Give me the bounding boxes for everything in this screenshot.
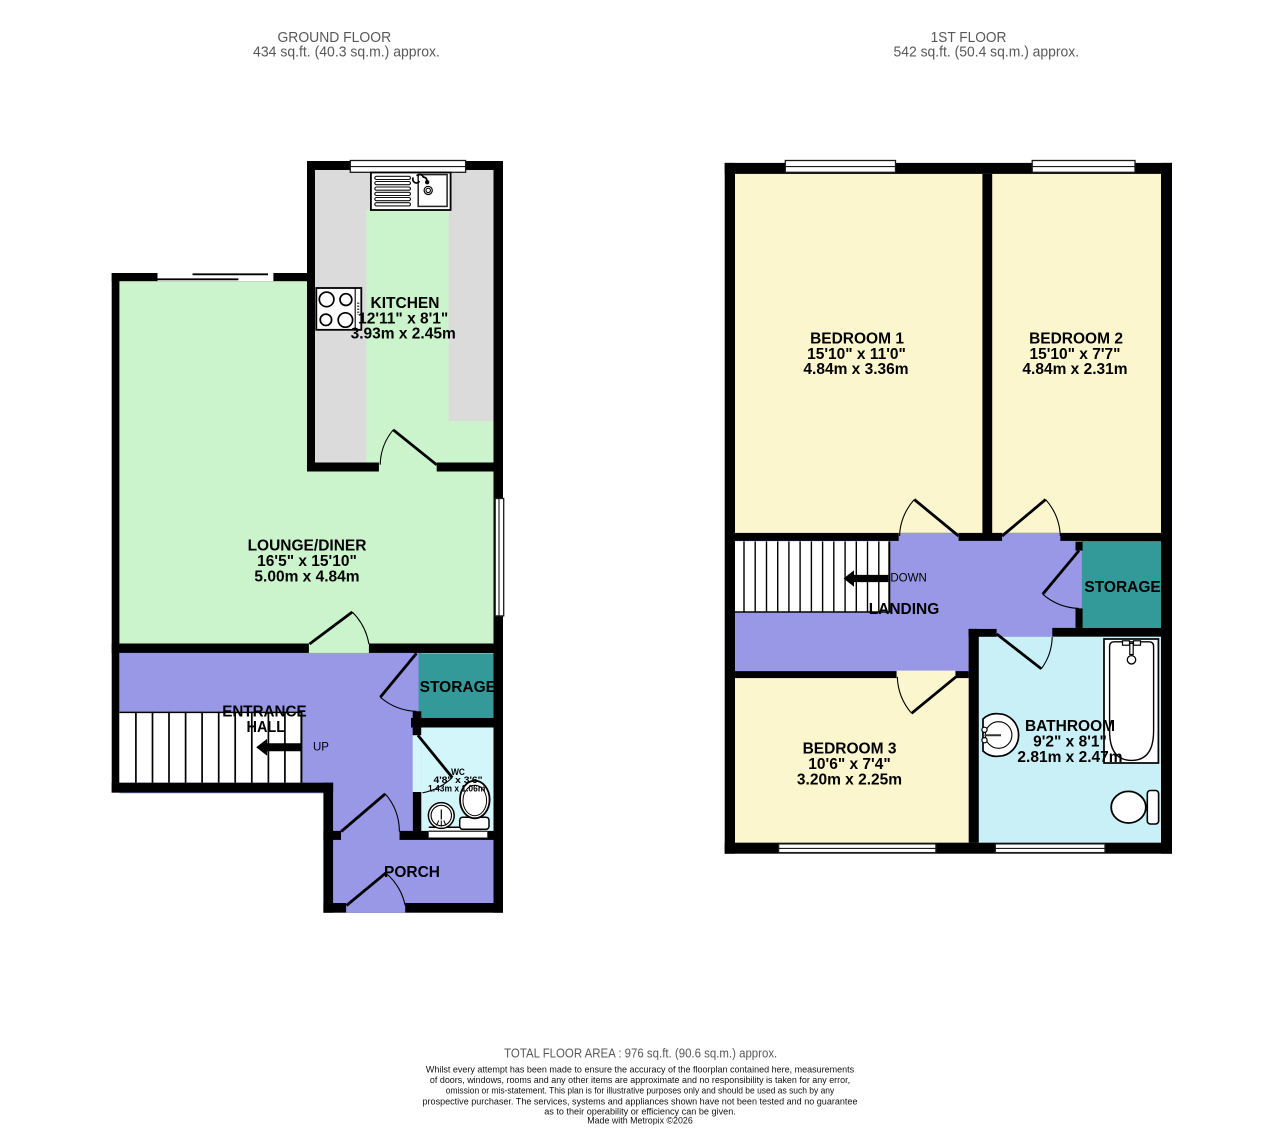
svg-text:HALL: HALL — [247, 719, 286, 736]
svg-text:4.84m x 3.36m: 4.84m x 3.36m — [803, 361, 908, 378]
svg-text:542 sq.ft. (50.4 sq.m.) approx: 542 sq.ft. (50.4 sq.m.) approx. — [894, 44, 1080, 60]
svg-text:UP: UP — [313, 742, 329, 754]
svg-text:STORAGE: STORAGE — [1084, 579, 1160, 596]
svg-text:Whilst every attempt has been: Whilst every attempt has been made to en… — [426, 1064, 854, 1075]
svg-text:1.43m x 1.06m: 1.43m x 1.06m — [428, 783, 485, 793]
svg-text:5.00m x 4.84m: 5.00m x 4.84m — [254, 568, 359, 585]
svg-text:BATHROOM: BATHROOM — [1025, 718, 1115, 735]
svg-text:3.93m x 2.45m: 3.93m x 2.45m — [351, 326, 456, 343]
svg-text:of doors, windows, rooms and a: of doors, windows, rooms and any other i… — [430, 1075, 850, 1086]
svg-text:9'2" x 8'1": 9'2" x 8'1" — [1033, 734, 1107, 751]
svg-text:2.81m x 2.47m: 2.81m x 2.47m — [1017, 749, 1122, 766]
svg-text:PORCH: PORCH — [384, 864, 440, 881]
svg-text:STORAGE: STORAGE — [420, 679, 496, 696]
svg-text:TOTAL FLOOR AREA : 976 sq.ft.: TOTAL FLOOR AREA : 976 sq.ft. (90.6 sq.m… — [504, 1046, 777, 1061]
svg-text:DOWN: DOWN — [890, 572, 926, 584]
svg-text:3.20m x 2.25m: 3.20m x 2.25m — [797, 771, 902, 788]
svg-text:434 sq.ft. (40.3 sq.m.) approx: 434 sq.ft. (40.3 sq.m.) approx. — [253, 44, 440, 60]
svg-text:LANDING: LANDING — [869, 601, 940, 618]
svg-text:Made with Metropix ©2026: Made with Metropix ©2026 — [587, 1115, 693, 1125]
svg-text:omission or mis-statement. Thi: omission or mis-statement. This plan is … — [446, 1085, 835, 1096]
svg-text:4.84m x 2.31m: 4.84m x 2.31m — [1022, 361, 1127, 378]
